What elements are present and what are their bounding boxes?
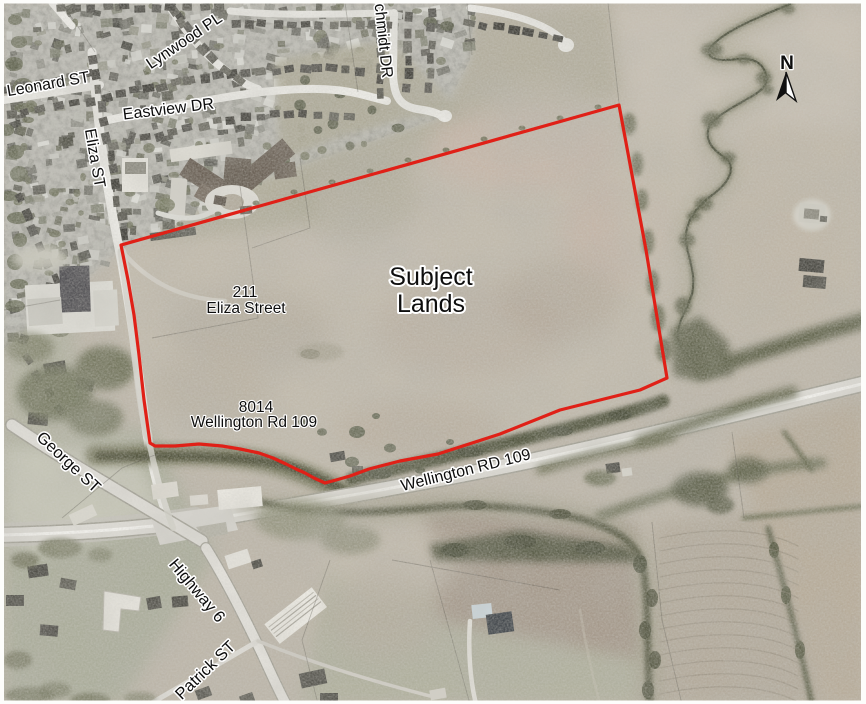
svg-text:Subject: Subject [389, 263, 472, 291]
svg-text:211: 211 [233, 284, 258, 301]
svg-text:N: N [780, 53, 794, 74]
svg-text:Wellington Rd 109: Wellington Rd 109 [191, 414, 317, 431]
svg-text:Eliza Street: Eliza Street [206, 300, 286, 317]
svg-text:Lands: Lands [397, 290, 465, 318]
